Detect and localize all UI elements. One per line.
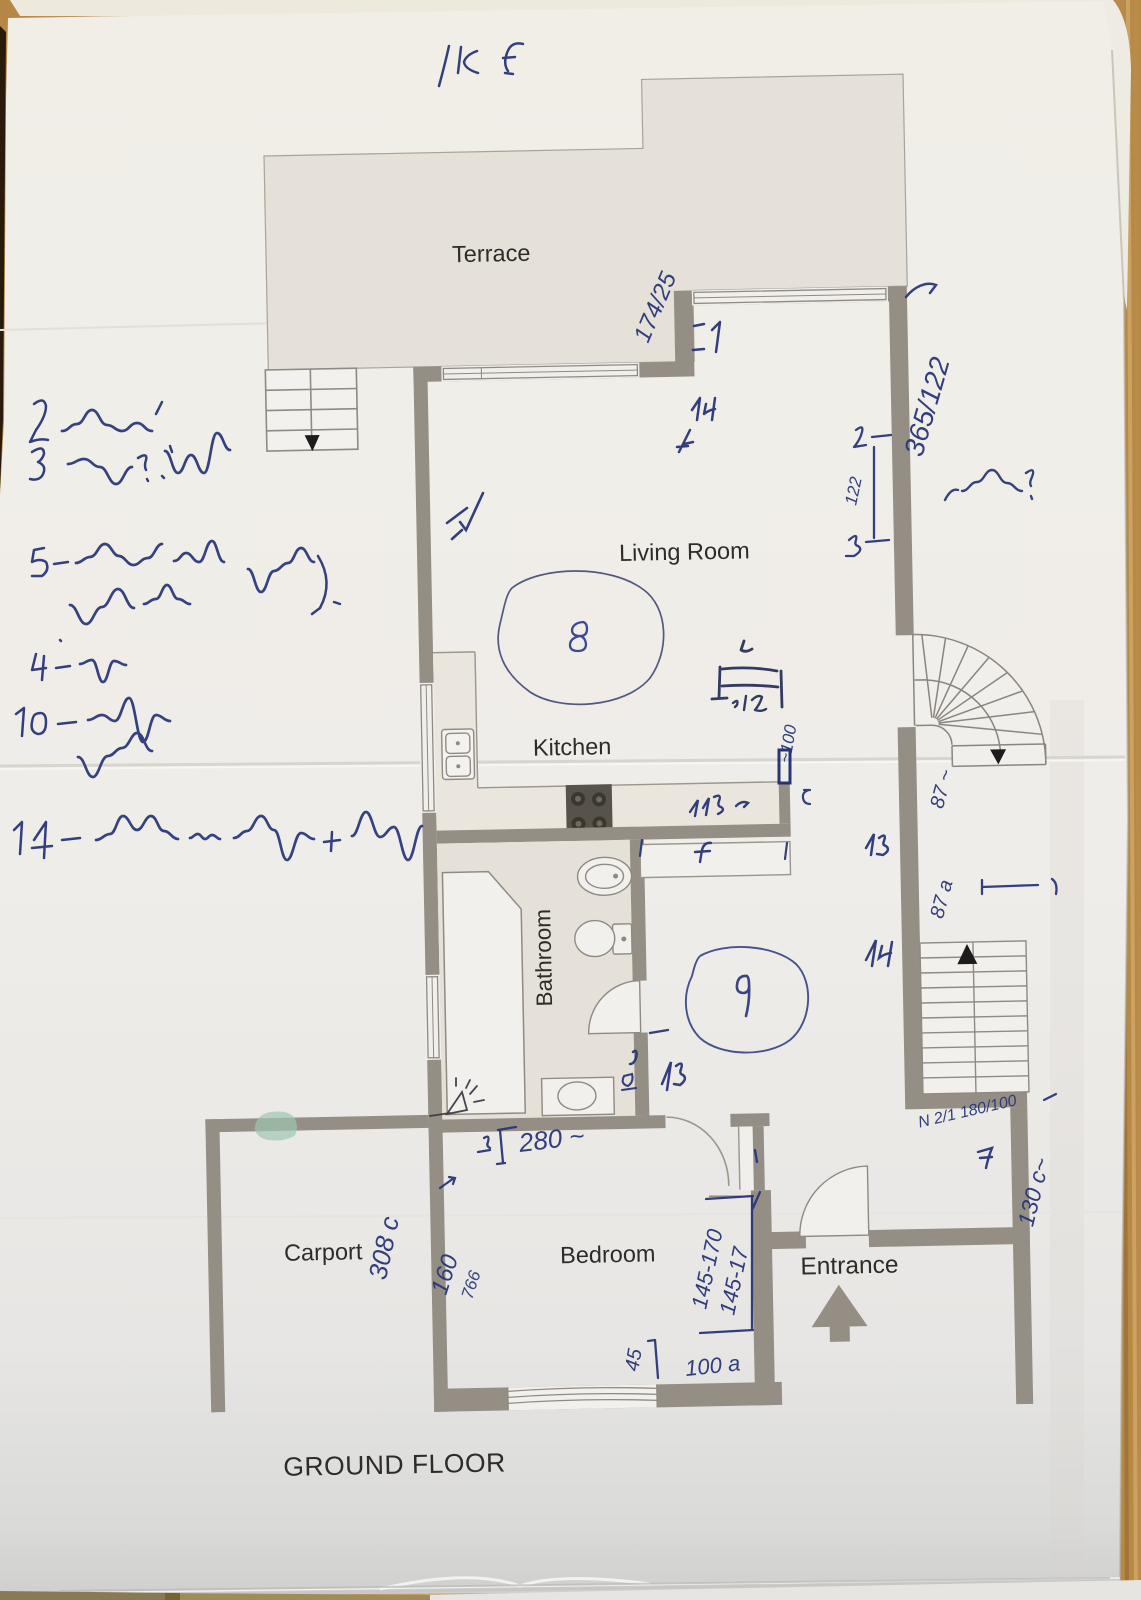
svg-text:Terrace: Terrace	[452, 240, 531, 268]
svg-text:Entrance: Entrance	[800, 1252, 899, 1281]
svg-text:Living Room: Living Room	[619, 537, 750, 566]
svg-text:GROUND FLOOR: GROUND FLOOR	[283, 1447, 506, 1481]
svg-text:Bathroom: Bathroom	[530, 909, 557, 1007]
svg-text:Kitchen: Kitchen	[533, 733, 612, 761]
svg-text:Carport: Carport	[284, 1238, 363, 1266]
svg-text:Bedroom: Bedroom	[560, 1240, 656, 1268]
